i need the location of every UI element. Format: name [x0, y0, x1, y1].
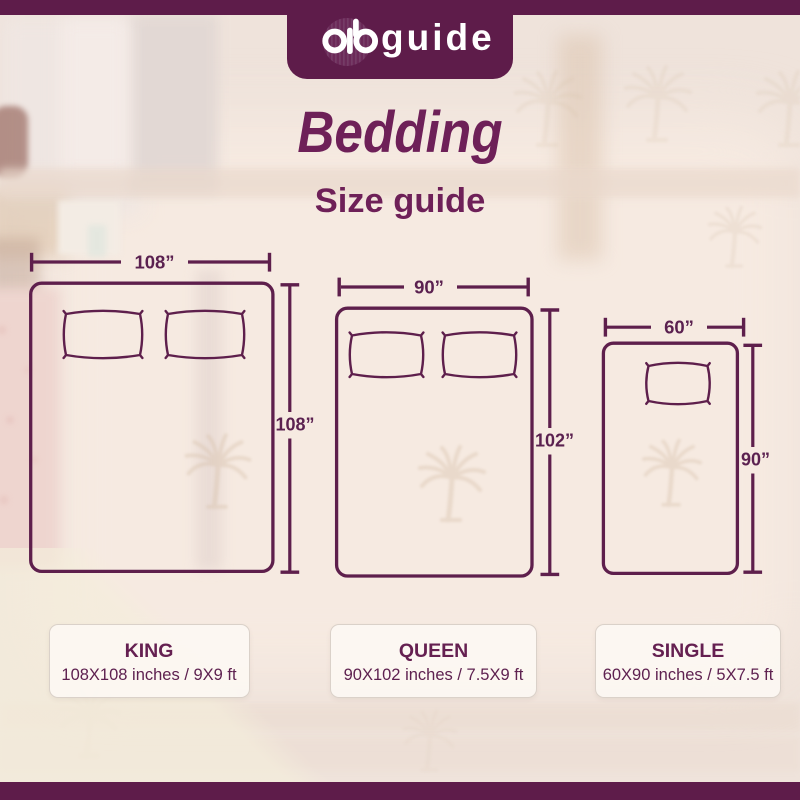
svg-text:60”: 60”: [664, 317, 694, 338]
svg-text:102”: 102”: [535, 431, 574, 451]
svg-text:90”: 90”: [741, 450, 770, 470]
svg-text:108”: 108”: [275, 415, 314, 435]
svg-text:108”: 108”: [134, 251, 174, 272]
svg-text:90”: 90”: [414, 276, 444, 297]
